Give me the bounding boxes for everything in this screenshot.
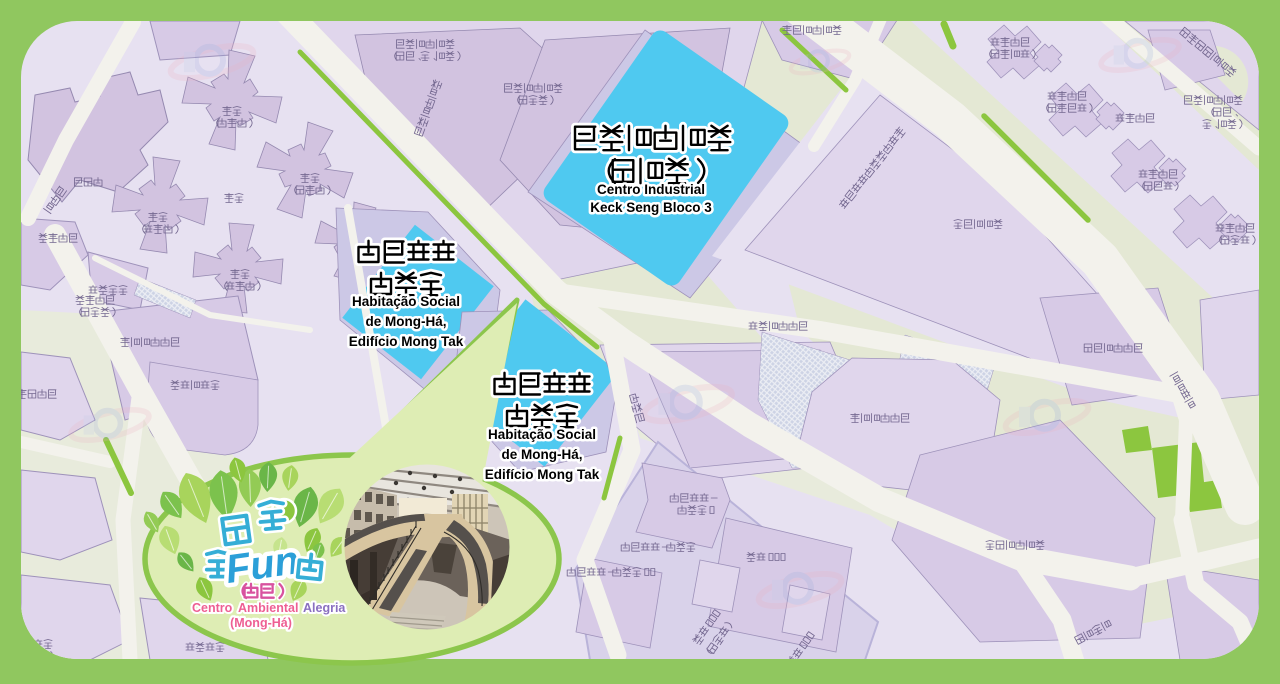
svg-text:de Mong-Há,: de Mong-Há, bbox=[366, 314, 447, 329]
svg-text:Alegria: Alegria bbox=[303, 601, 346, 615]
svg-text:Edifício Mong Tak: Edifício Mong Tak bbox=[485, 467, 600, 482]
svg-text:Keck Seng Bloco 3: Keck Seng Bloco 3 bbox=[590, 200, 712, 215]
svg-text:de Mong-Há,: de Mong-Há, bbox=[502, 447, 583, 462]
svg-text:(Mong-Há): (Mong-Há) bbox=[230, 616, 292, 630]
svg-text:Habitação Social: Habitação Social bbox=[488, 427, 596, 442]
svg-text:Centro: Centro bbox=[192, 601, 233, 615]
svg-text:Edifício Mong Tak: Edifício Mong Tak bbox=[349, 334, 464, 349]
svg-text:Centro Industrial: Centro Industrial bbox=[597, 182, 705, 197]
svg-text:Ambiental: Ambiental bbox=[238, 601, 298, 615]
svg-text:Habitação Social: Habitação Social bbox=[352, 294, 460, 309]
